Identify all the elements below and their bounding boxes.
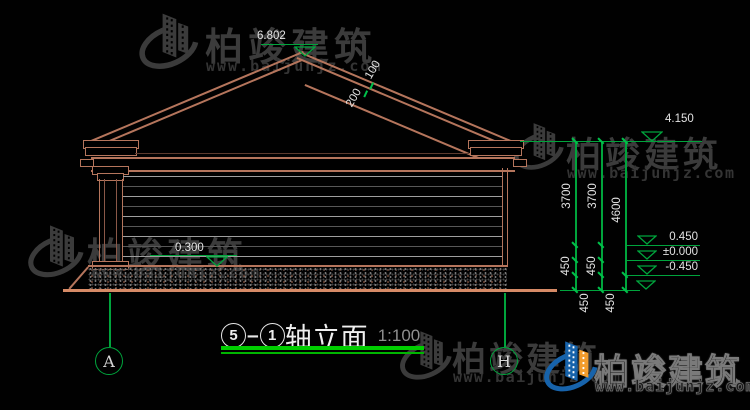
axis-bubble-left: A	[95, 347, 123, 375]
level-marker-icon	[637, 235, 657, 245]
dim-wall-height: 3700	[561, 176, 573, 216]
level-top-value: 0.450	[653, 231, 698, 243]
ground-line	[63, 289, 557, 292]
dim-step: 450	[579, 288, 591, 318]
level-ridge-line	[261, 44, 318, 45]
brand-logo-icon	[542, 338, 600, 396]
eave-soffit-line	[135, 153, 469, 154]
dim-wall-height: 3700	[587, 176, 599, 216]
level-marker-icon	[637, 265, 657, 275]
title-axis-end-bubble: 1	[260, 323, 285, 348]
column-flute-line	[116, 179, 117, 261]
level-marker-icon	[636, 280, 656, 290]
level-eave-value: 4.150	[665, 113, 694, 125]
dim-line-vertical-3	[625, 141, 627, 291]
level-neg-line	[625, 275, 700, 276]
dim-step: 450	[605, 288, 617, 318]
level-neg-value: -0.450	[650, 261, 698, 273]
fascia-end-bracket-right	[513, 159, 527, 167]
dim-line-vertical-2	[601, 141, 603, 291]
dim-step: 450	[586, 251, 598, 281]
title-underline-thick	[221, 346, 424, 350]
wall-siding-line	[123, 186, 503, 187]
dim-total-height: 4600	[611, 190, 623, 230]
wall-siding-line	[123, 206, 503, 207]
column-flute-line	[104, 179, 105, 261]
wall-siding-line	[123, 236, 503, 237]
watermark-brand-url: www.baijunjz.com	[206, 57, 383, 75]
title-axis-end: 1	[268, 327, 276, 344]
plinth-hatch-band	[88, 267, 507, 289]
dim-step: 450	[560, 251, 572, 281]
title-scale: 1:100	[378, 326, 421, 346]
wall-siding-line	[123, 226, 503, 227]
title-separator: –	[247, 324, 259, 348]
fascia-band	[91, 157, 515, 172]
axis-line-right	[504, 293, 506, 347]
level-ridge-value: 6.802	[257, 30, 286, 42]
title-underline-thin	[221, 352, 424, 354]
axis-bubble-right: H	[490, 347, 518, 375]
level-marker-icon	[294, 46, 316, 57]
wall-siding-line	[123, 216, 503, 217]
axis-label-left: A	[103, 352, 115, 371]
title-axis-start: 5	[229, 327, 237, 344]
brand-logo	[542, 338, 600, 401]
wall-siding-line	[123, 176, 503, 177]
cad-canvas: 柏竣建筑 www.baijunjz.com 柏竣建筑 www.baijunjz.…	[0, 0, 750, 410]
column-shaft	[99, 179, 123, 261]
level-plinth-value: 0.300	[175, 242, 204, 254]
watermark-top-left	[137, 10, 201, 79]
level-marker-icon	[637, 250, 657, 260]
brand-logo-icon	[26, 222, 86, 282]
level-eave-line	[520, 141, 702, 142]
axis-line-left	[109, 293, 111, 347]
cornice-step-left-2	[85, 147, 137, 156]
wall-siding-line	[123, 196, 503, 197]
axis-label-right: H	[497, 352, 511, 371]
brand-url: www.baijunjz.com	[595, 377, 750, 395]
level-marker-icon	[206, 256, 228, 267]
wall-right-corner-edge	[502, 168, 508, 267]
title-axis-start-bubble: 5	[221, 323, 246, 348]
roof-slope-right-inner	[297, 57, 515, 150]
roof-slope-right-outer	[299, 51, 522, 146]
dim-line-vertical-1	[575, 141, 577, 291]
cornice-step-right-2	[470, 147, 522, 156]
brand-logo-icon	[137, 10, 201, 74]
